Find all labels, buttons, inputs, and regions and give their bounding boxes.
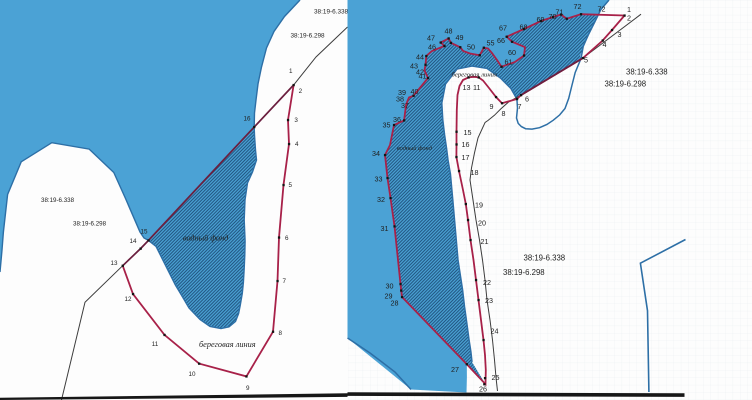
svg-text:11: 11: [473, 83, 480, 92]
svg-text:71: 71: [556, 8, 564, 17]
svg-text:24: 24: [491, 327, 499, 336]
svg-text:43: 43: [410, 62, 418, 71]
svg-text:12: 12: [125, 296, 133, 303]
svg-text:15: 15: [464, 128, 472, 137]
svg-text:72: 72: [574, 2, 582, 11]
svg-text:водный фонд: водный фонд: [183, 234, 228, 243]
svg-text:69: 69: [537, 15, 545, 24]
svg-text:2: 2: [299, 88, 303, 95]
svg-text:31: 31: [381, 224, 389, 233]
svg-text:39: 39: [398, 88, 406, 97]
svg-text:38:19-6.298: 38:19-6.298: [291, 33, 326, 40]
svg-text:25: 25: [492, 373, 500, 382]
svg-text:11: 11: [152, 341, 159, 348]
svg-text:2: 2: [627, 14, 631, 23]
svg-text:46: 46: [428, 43, 436, 52]
svg-text:38:19-6.338: 38:19-6.338: [524, 254, 566, 263]
svg-text:35: 35: [383, 121, 391, 130]
svg-text:48: 48: [445, 27, 453, 36]
svg-text:68: 68: [520, 23, 528, 32]
svg-text:10: 10: [189, 371, 197, 378]
svg-text:20: 20: [478, 219, 486, 228]
svg-text:61: 61: [505, 58, 513, 67]
svg-text:22: 22: [483, 278, 491, 287]
svg-text:19: 19: [475, 201, 483, 210]
svg-text:7: 7: [283, 278, 287, 285]
svg-text:29: 29: [385, 292, 393, 301]
svg-text:16: 16: [244, 116, 252, 123]
svg-text:38:19-6.338: 38:19-6.338: [41, 197, 75, 204]
svg-text:береговая линия: береговая линия: [199, 340, 256, 349]
svg-text:16: 16: [462, 140, 470, 149]
svg-text:23: 23: [485, 296, 493, 305]
svg-text:1: 1: [289, 68, 293, 75]
svg-text:8: 8: [279, 330, 283, 337]
svg-text:7: 7: [518, 102, 522, 111]
svg-text:38:19-6.298: 38:19-6.298: [605, 80, 647, 89]
svg-text:66: 66: [497, 36, 505, 45]
svg-text:34: 34: [372, 149, 380, 158]
svg-text:21: 21: [481, 237, 489, 246]
svg-text:13: 13: [463, 83, 471, 92]
svg-text:4: 4: [603, 40, 607, 49]
svg-text:5: 5: [584, 56, 588, 65]
svg-text:водный фонд: водный фонд: [397, 145, 432, 152]
svg-text:38:19-6.338: 38:19-6.338: [314, 9, 349, 16]
svg-text:32: 32: [377, 195, 385, 204]
svg-text:44: 44: [416, 53, 424, 62]
svg-text:60: 60: [508, 48, 516, 57]
svg-text:береговая линия: береговая линия: [452, 72, 498, 79]
svg-text:6: 6: [525, 95, 529, 104]
svg-text:9: 9: [490, 102, 494, 111]
svg-text:18: 18: [471, 168, 479, 177]
svg-text:3: 3: [618, 30, 622, 39]
svg-text:26: 26: [479, 385, 487, 394]
svg-text:38:19-6.298: 38:19-6.298: [73, 221, 107, 228]
svg-text:9: 9: [246, 385, 250, 392]
svg-text:8: 8: [502, 109, 506, 118]
svg-text:50: 50: [467, 43, 475, 52]
svg-text:47: 47: [427, 34, 435, 43]
svg-text:38:19-6.298: 38:19-6.298: [503, 268, 545, 277]
svg-text:33: 33: [375, 175, 383, 184]
svg-text:36: 36: [393, 115, 401, 124]
svg-text:4: 4: [295, 141, 299, 148]
svg-text:5: 5: [289, 182, 293, 189]
svg-text:49: 49: [456, 33, 464, 42]
svg-text:17: 17: [462, 153, 470, 162]
svg-text:15: 15: [141, 229, 149, 236]
svg-text:55: 55: [487, 39, 495, 48]
svg-text:13: 13: [111, 260, 119, 267]
svg-text:30: 30: [386, 282, 394, 291]
svg-text:14: 14: [130, 238, 138, 245]
svg-text:3: 3: [294, 117, 298, 124]
svg-text:6: 6: [285, 235, 289, 242]
svg-text:72: 72: [598, 5, 606, 14]
svg-text:67: 67: [499, 24, 507, 33]
svg-text:38:19-6.338: 38:19-6.338: [626, 68, 668, 77]
svg-text:40: 40: [411, 87, 419, 96]
svg-text:27: 27: [451, 365, 459, 374]
